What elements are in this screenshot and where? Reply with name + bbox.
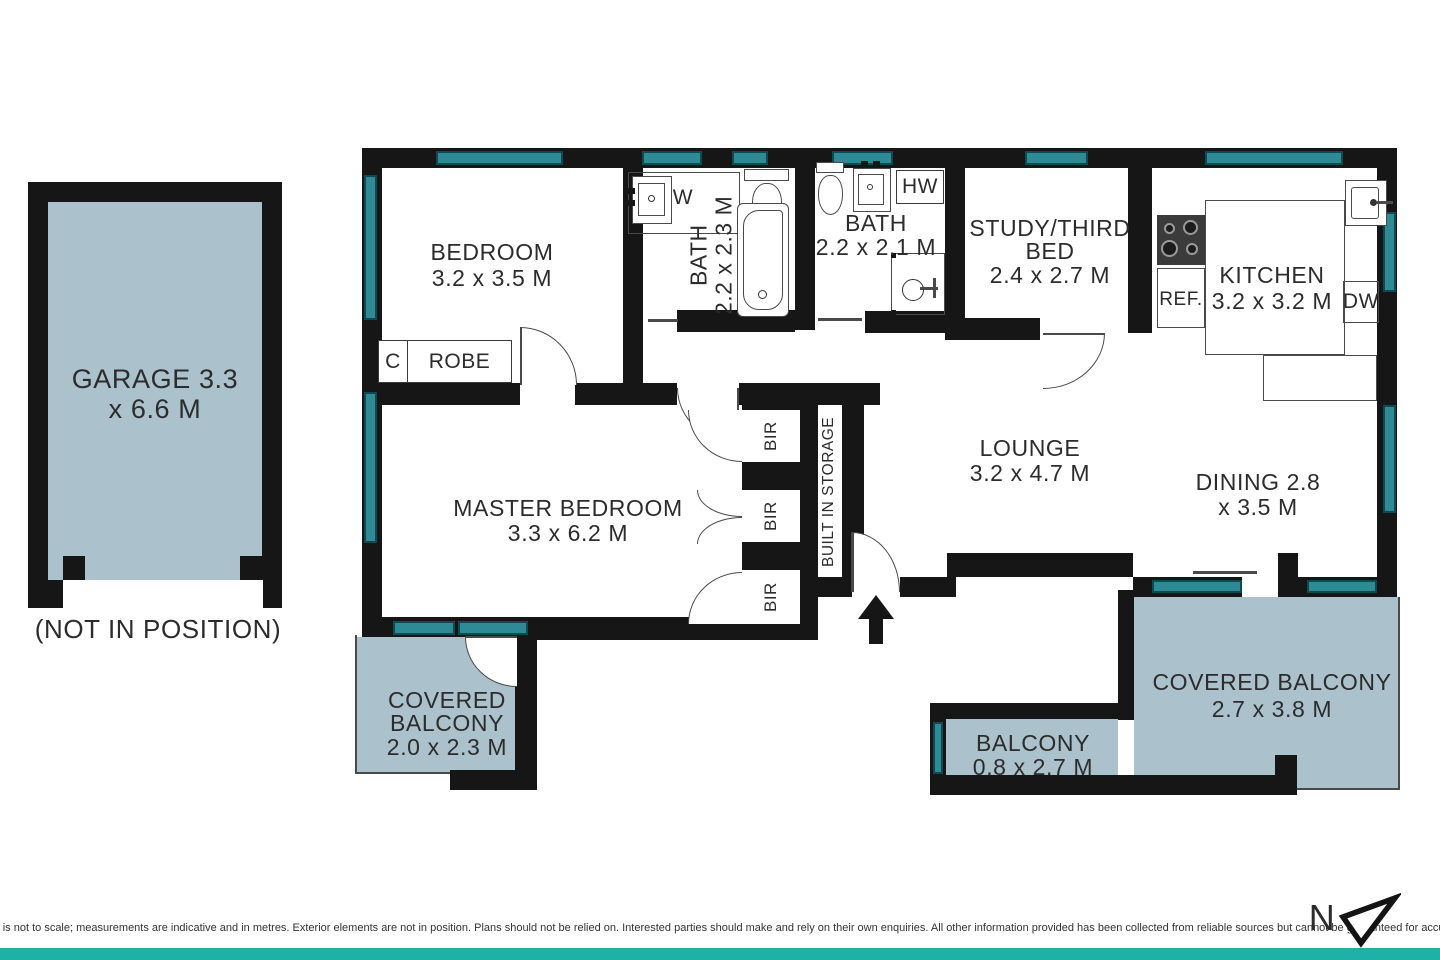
- hot-water-label: HW: [902, 175, 938, 199]
- room-dims-bedroom: 3.2 x 3.5 M: [432, 266, 552, 291]
- tap-icon: [1370, 199, 1377, 206]
- window-sliding-door: [458, 621, 528, 635]
- room-label-covered-balcony-left2: BALCONY: [390, 711, 504, 736]
- window: [642, 151, 702, 165]
- room-label-dining: DINING 2.8: [1196, 470, 1321, 495]
- wall-hall-a: [362, 383, 520, 405]
- door-leaf: [1043, 333, 1105, 335]
- door-swing-bir3: [688, 572, 742, 624]
- wall-balcony-left-bottom: [450, 770, 537, 790]
- counter-outline: [1263, 355, 1377, 401]
- wall-entry-east: [900, 577, 956, 597]
- bir-label-1: BIR: [758, 410, 784, 462]
- garage-dims: x 6.6 M: [109, 395, 202, 425]
- window: [933, 722, 943, 774]
- wall-study-kitchen: [1128, 168, 1152, 333]
- garage-door-opening: [63, 580, 263, 608]
- wall-bath2-study: [945, 168, 965, 340]
- room-dims-balcony: 0.8 x 2.7 M: [973, 755, 1093, 780]
- wall-cb-pier: [1275, 755, 1297, 777]
- tap-icon: [648, 195, 655, 202]
- garage-door-notch: [240, 556, 262, 580]
- room-label-covered-balcony-right: COVERED BALCONY: [1152, 670, 1391, 695]
- window: [364, 392, 377, 543]
- room-dims-covered-balcony-left: 2.0 x 2.3 M: [387, 735, 507, 760]
- wall-study-bottom: [945, 318, 1040, 340]
- garage-note: (NOT IN POSITION): [35, 615, 282, 644]
- room-label-master: MASTER BEDROOM: [453, 496, 682, 521]
- room-label-kitchen: KITCHEN: [1219, 263, 1324, 288]
- room-dims-study: 2.4 x 2.7 M: [990, 263, 1110, 288]
- wall-cb-right-left: [1118, 590, 1134, 720]
- tap-icon: [873, 161, 880, 167]
- room-label-balcony: BALCONY: [976, 731, 1090, 756]
- drain-icon: [758, 290, 767, 299]
- covered-balcony-right-outline: [1398, 597, 1400, 790]
- robe-label: ROBE: [429, 350, 491, 374]
- accent-bar: [0, 948, 1440, 960]
- hot-water-box: HW: [896, 170, 944, 204]
- burner-icon: [1183, 220, 1198, 235]
- burner-icon: [1186, 243, 1198, 255]
- door-swing-bedroom: [520, 327, 577, 385]
- door-swing-bir2: [697, 490, 742, 517]
- window: [1025, 151, 1088, 165]
- wall-hall-b: [575, 383, 677, 405]
- door-swing-bir2: [697, 517, 742, 544]
- cupboard-label: C: [385, 350, 401, 374]
- room-label-bath1: BATH: [686, 185, 712, 325]
- bir-label-2: BIR: [758, 490, 784, 542]
- tap-icon: [1377, 201, 1393, 204]
- wall-bath1-bath2: [795, 168, 815, 330]
- tap-icon: [867, 184, 873, 190]
- room-label-bedroom: BEDROOM: [430, 240, 553, 265]
- built-in-storage-label: BUILT IN STORAGE: [816, 407, 842, 577]
- shower-head-icon: [902, 279, 924, 301]
- shower-arm-icon: [933, 278, 936, 298]
- fridge-label: REF.: [1159, 290, 1203, 311]
- window: [1205, 151, 1343, 165]
- slider-track: [1193, 571, 1257, 574]
- covered-balcony-left-outline: [355, 635, 357, 774]
- entry-arrow-icon: [869, 618, 883, 644]
- covered-balcony-right-outline: [1297, 788, 1400, 790]
- garage-label: GARAGE 3.3: [72, 365, 239, 395]
- toilet-bowl-icon: [818, 175, 843, 215]
- window-sliding-door: [393, 621, 455, 635]
- tap-icon: [627, 200, 635, 206]
- window-sliding-door: [1152, 580, 1242, 593]
- wall-lounge-bottom: [947, 553, 1133, 577]
- burner-icon: [1161, 240, 1178, 257]
- north-label: N: [1309, 898, 1336, 938]
- bir-label-3: BIR: [758, 570, 784, 624]
- room-dims-bath1: 2.2 x 2.3 M: [711, 175, 737, 335]
- toilet-tank-icon: [744, 169, 789, 181]
- entry-arrow-icon: [858, 595, 894, 619]
- room-label-bath2: BATH: [845, 211, 907, 236]
- window: [364, 175, 377, 320]
- robe-box: ROBE: [407, 340, 512, 383]
- tap-icon: [627, 188, 635, 194]
- room-dims-bath2: 2.2 x 2.1 M: [816, 235, 936, 260]
- door-leaf: [520, 327, 522, 385]
- room-label-lounge: LOUNGE: [980, 436, 1081, 461]
- door-swing-study: [1043, 333, 1105, 389]
- dishwasher-label: DW: [1343, 290, 1379, 313]
- burner-icon: [1164, 223, 1175, 234]
- door-leaf-bath1: [648, 319, 678, 322]
- room-label-study2: BED: [1025, 239, 1074, 264]
- shower-corner-dot: [891, 310, 896, 315]
- tap-icon: [861, 161, 868, 167]
- wall-entry-west: [798, 577, 852, 597]
- window: [436, 151, 563, 165]
- door-leaf: [465, 636, 517, 638]
- window: [1383, 405, 1396, 513]
- room-dims-master: 3.3 x 6.2 M: [508, 521, 628, 546]
- dining-slider-opening: [1242, 577, 1278, 597]
- room-dims-dining: x 3.5 M: [1218, 495, 1298, 520]
- wall-hall-c: [739, 383, 880, 405]
- cooktop-icon: [1157, 215, 1205, 265]
- north-arrow-icon: [1337, 893, 1401, 951]
- cupboard-box: C: [378, 340, 408, 383]
- toilet-tank-icon: [816, 162, 844, 173]
- room-dims-covered-balcony-right: 2.7 x 3.8 M: [1212, 697, 1332, 722]
- room-dims-lounge: 3.2 x 4.7 M: [970, 461, 1090, 486]
- window-sliding-door: [1307, 580, 1377, 593]
- door-swing-bir1: [688, 410, 742, 462]
- room-dims-kitchen: 3.2 x 3.2 M: [1212, 289, 1332, 314]
- door-swing-entry: [852, 532, 900, 592]
- door-leaf-bath2: [818, 318, 862, 321]
- window: [732, 151, 768, 165]
- garage-door-notch: [63, 556, 85, 580]
- wall-balcony-top: [930, 703, 1120, 719]
- wall-balcony-left-right: [515, 620, 537, 790]
- floor-plan: GARAGE 3.3 x 6.6 M (NOT IN POSITION): [0, 0, 1440, 960]
- door-leaf: [851, 532, 854, 592]
- disclaimer-text: The floor plan is not to scale; measurem…: [0, 922, 1440, 934]
